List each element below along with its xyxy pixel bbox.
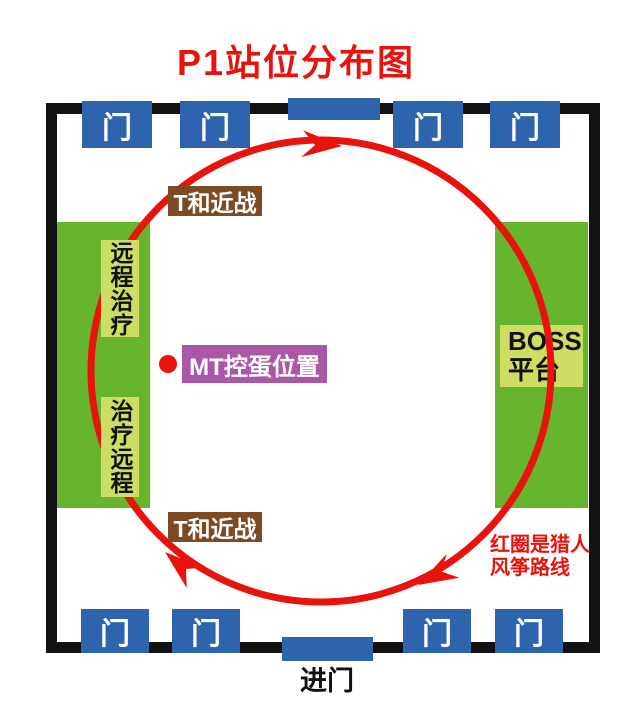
route-arrow-top [301, 130, 343, 160]
tank-melee-label-top: T和近战 [168, 186, 262, 216]
page-title: P1站位分布图 [0, 34, 592, 86]
entry-label: 进门 [267, 659, 387, 698]
mt-position-label: MT控蛋位置 [182, 345, 327, 383]
ranged-heal-label-bottom: 治疗远程 [101, 397, 139, 497]
route-note-line1: 红圈是猎人 [490, 534, 590, 557]
mt-position-dot [159, 355, 177, 373]
positioning-diagram: P1站位分布图 门 门 门 门 门 门 门 门 进门 BOSS 平台 远程治疗 … [0, 0, 640, 720]
route-note: 红圈是猎人 风筝路线 [490, 534, 590, 580]
route-note-line2: 风筝路线 [490, 557, 590, 580]
tank-melee-label-bottom: T和近战 [168, 512, 262, 542]
ranged-heal-label-top: 远程治疗 [101, 240, 139, 337]
